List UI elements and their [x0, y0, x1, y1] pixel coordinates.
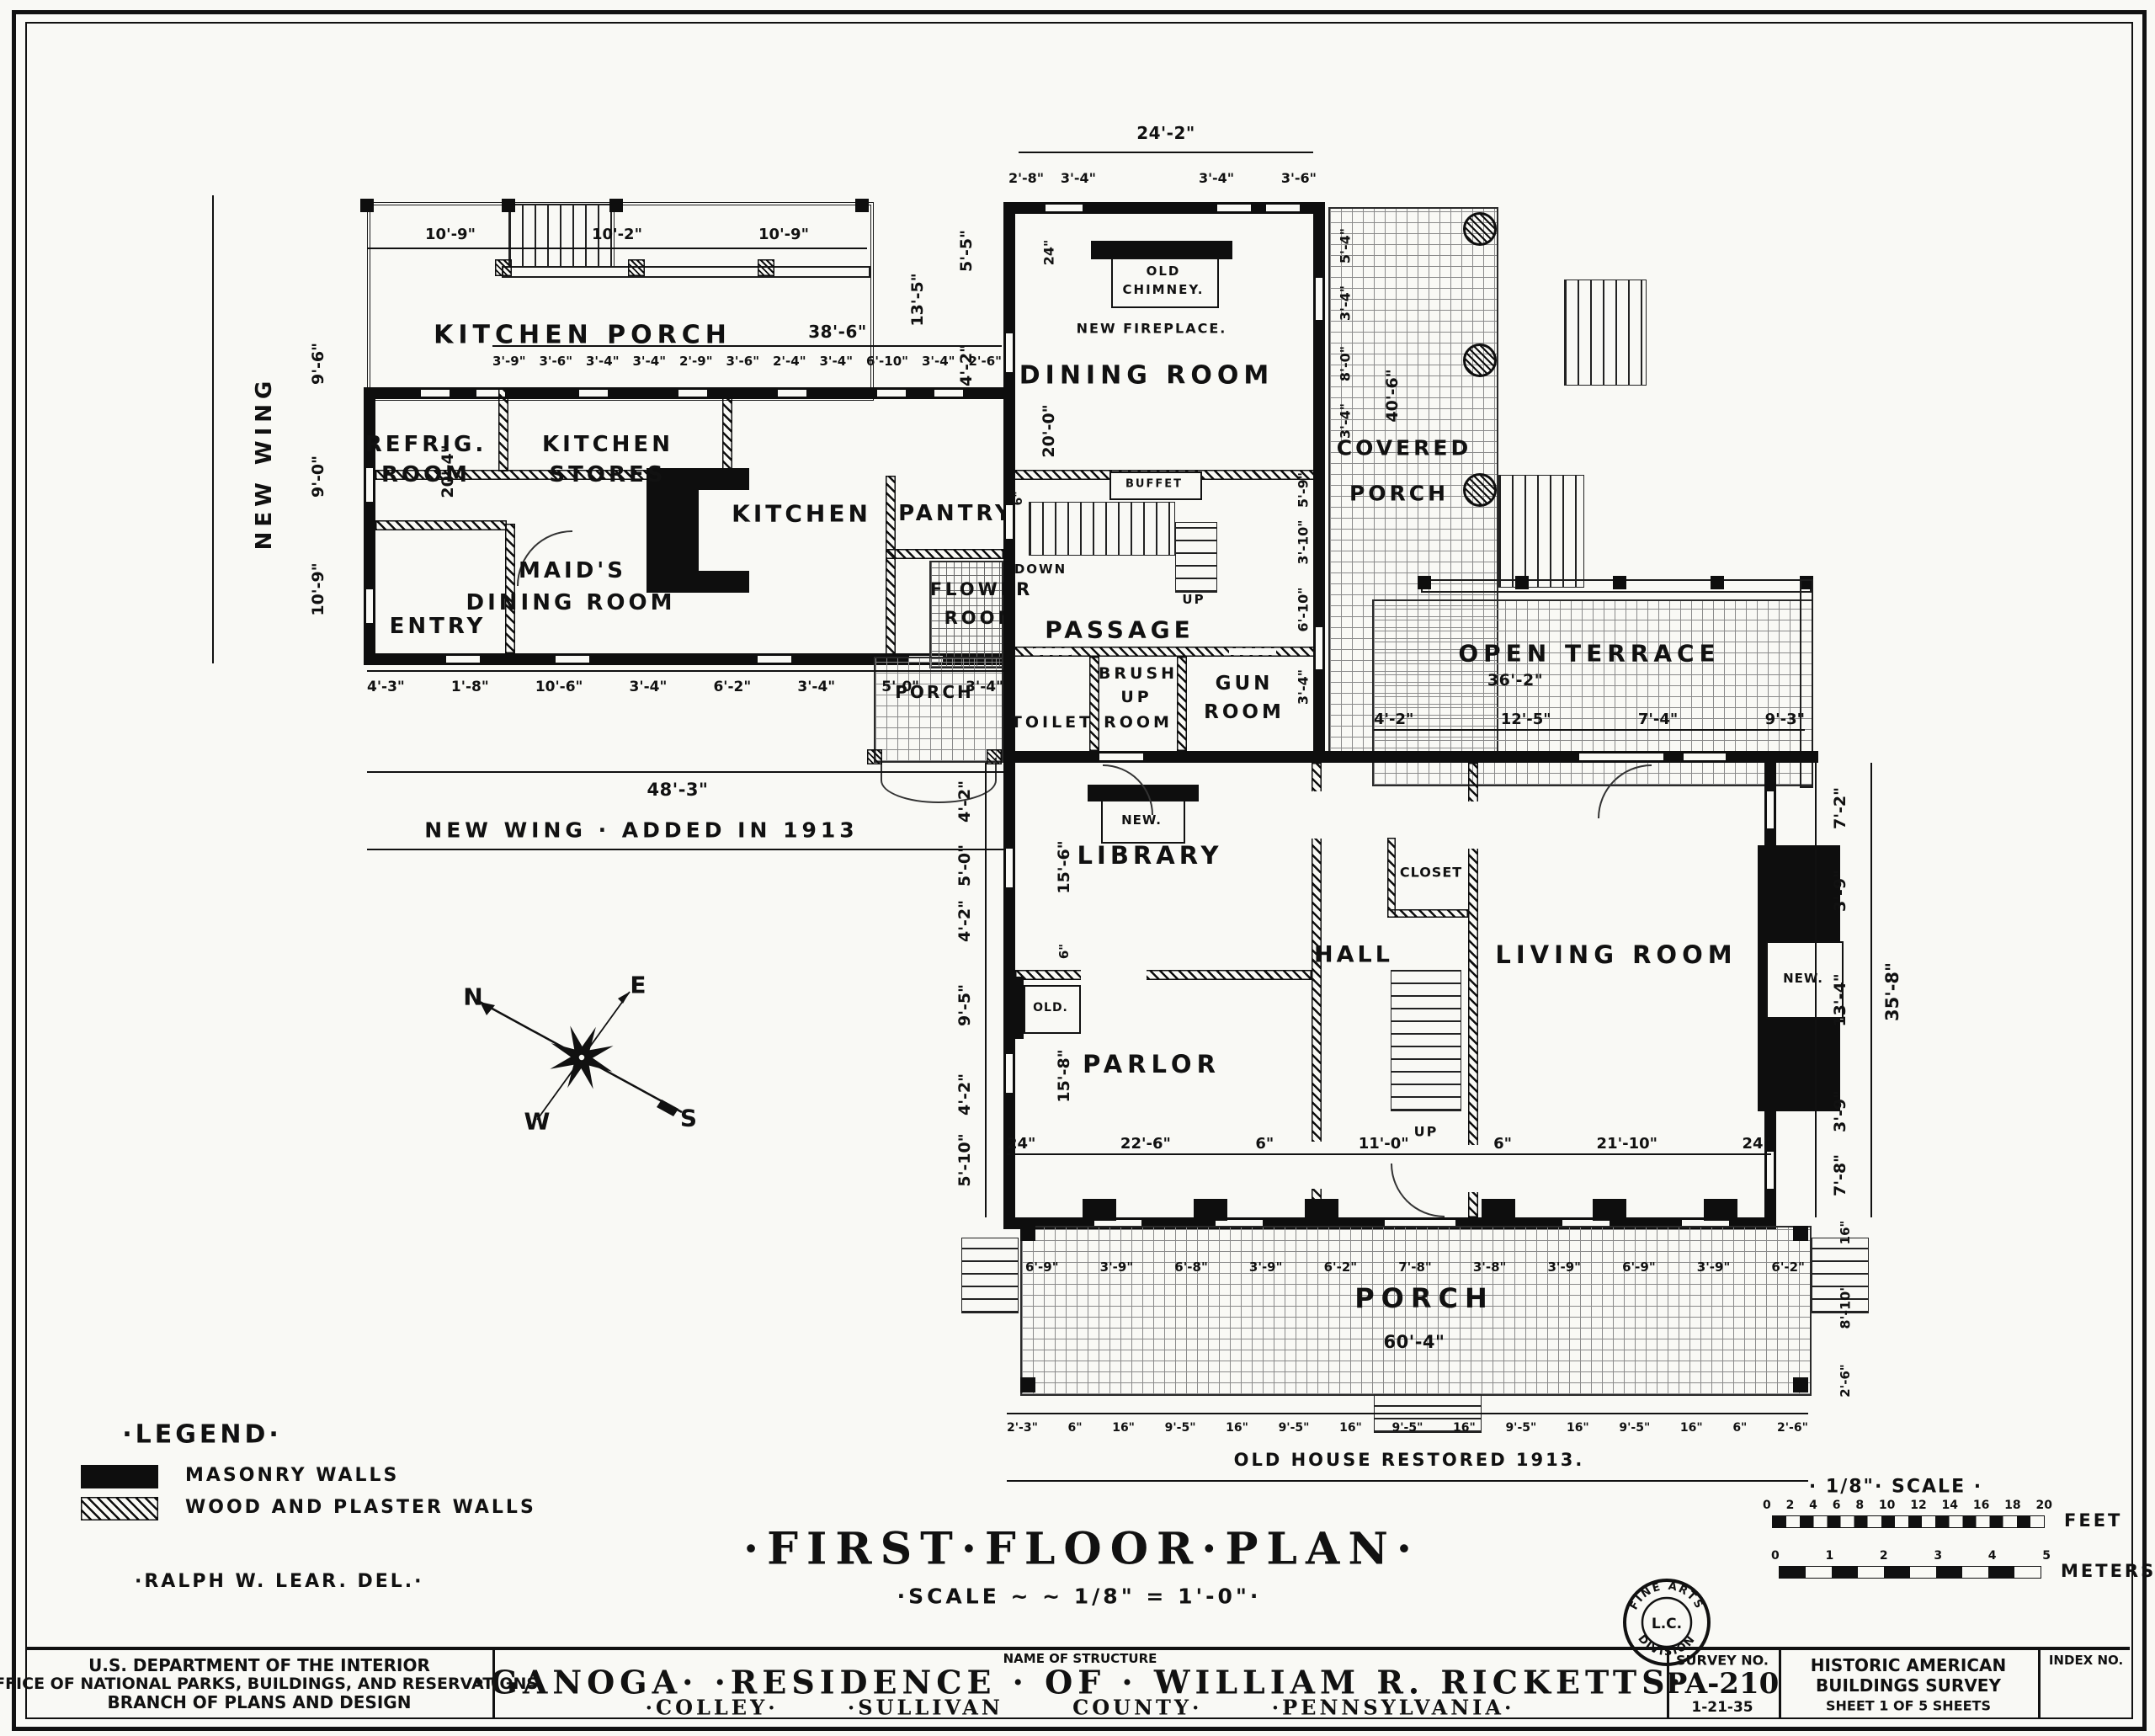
- dimension-label: 11'-0": [1359, 1135, 1409, 1153]
- dimension-line: [985, 763, 987, 1217]
- porch-column: [758, 259, 774, 276]
- fireplace-masonry: [1007, 977, 1024, 1039]
- tick-label: 12: [1910, 1499, 1926, 1512]
- dimension: 5'-10": [955, 1133, 974, 1186]
- label-old: OLD.: [1033, 1001, 1068, 1014]
- dimension-line: [367, 771, 1003, 773]
- dimension-label: 3'-9": [1547, 1259, 1581, 1275]
- door-gap: [1081, 970, 1147, 980]
- dimension: 5'-5": [957, 230, 976, 272]
- dimension-label: 3'-9": [1249, 1259, 1283, 1275]
- hall-stairs: [1391, 970, 1461, 1111]
- dimension-line: [1007, 1480, 1808, 1482]
- dimension: 15'-6": [1055, 840, 1073, 893]
- room-label-kitchen-stores: STORES: [549, 462, 666, 487]
- dimension-label: 6": [1732, 1421, 1747, 1435]
- wall-frame: [722, 387, 732, 471]
- scalebar-feet-label: FEET: [2064, 1510, 2122, 1531]
- dimension: 8'-0": [1338, 346, 1354, 381]
- window-gap: [934, 390, 963, 397]
- room-label-brush-up: BRUSH: [1099, 664, 1178, 683]
- dimension: 48'-3": [647, 780, 709, 800]
- porch-post: [1793, 1226, 1808, 1241]
- dimension: 4'-2": [955, 1073, 974, 1116]
- dimension-label: 7'-4": [1638, 711, 1678, 728]
- dimension-label: 2'-8": [1008, 170, 1044, 186]
- railing-post: [1515, 576, 1529, 589]
- tick-label: 16: [1973, 1499, 1989, 1512]
- dimension-line: [1019, 152, 1313, 153]
- agency-line: BRANCH OF PLANS AND DESIGN: [108, 1692, 412, 1712]
- dimension: 9'-0": [309, 455, 327, 498]
- room-label-closet: CLOSET: [1400, 865, 1462, 881]
- door-gap: [1468, 801, 1478, 849]
- room-label-dining-room: DINING ROOM: [1019, 361, 1274, 391]
- room-label-gun-room: GUN: [1216, 673, 1274, 695]
- dimension: 16": [1838, 1221, 1853, 1245]
- dimension-label: 7'-8": [1398, 1259, 1432, 1275]
- dimension: 4'-2": [957, 344, 976, 386]
- label-up: UP: [1182, 592, 1205, 607]
- dimension: 3'-4": [1296, 669, 1312, 705]
- title-block-divider: [1779, 1650, 1781, 1717]
- dimension-label: 4'-3": [367, 679, 405, 695]
- dimension-label: 12'-5": [1501, 711, 1551, 728]
- scalebar-meters-label: METERS: [2061, 1561, 2155, 1581]
- dimension-label: 2'-9": [679, 354, 713, 369]
- room-label-hall: HALL: [1314, 942, 1393, 968]
- dimension-label: 16": [1112, 1421, 1135, 1435]
- dimension-label: 6'-8": [1174, 1259, 1208, 1275]
- window-gap: [1266, 205, 1300, 211]
- railing-post: [1613, 576, 1626, 589]
- dimension-label: 16": [1567, 1421, 1589, 1435]
- tick-label: 2: [1786, 1499, 1795, 1512]
- dimension-line: [1007, 1413, 1808, 1414]
- tick-label: 5: [2042, 1549, 2051, 1563]
- sheet-info: SHEET 1 OF 5 SHEETS: [1826, 1698, 1991, 1714]
- dimension-line: [367, 849, 1003, 850]
- survey-date: 1-21-35: [1691, 1699, 1753, 1716]
- tick-label: 2: [1880, 1549, 1888, 1563]
- agency-line: U.S. DEPARTMENT OF THE INTERIOR: [88, 1655, 430, 1675]
- dimension-label: 3'-4": [966, 679, 1003, 695]
- tick-label: 14: [1942, 1499, 1958, 1512]
- dimension-label: 6'-9": [1622, 1259, 1656, 1275]
- dimension-label: 9'-5": [1279, 1421, 1310, 1435]
- dimension: 6'-10": [1296, 587, 1312, 631]
- kitchen-porch-inner-rail: [502, 266, 870, 278]
- dimension-label: 1'-8": [451, 679, 489, 695]
- dimension-line: [1870, 763, 1872, 1217]
- dimension: 9'-6": [309, 343, 327, 385]
- dimension-label: 3'-6": [1281, 170, 1317, 186]
- room-label-entry: ENTRY: [390, 614, 487, 639]
- dimension-label: 9'-3": [1765, 711, 1805, 728]
- dimension-label: 6'-2": [1771, 1259, 1805, 1275]
- dimension-label: 3'-4": [820, 354, 854, 369]
- dimension-line: [1007, 1153, 1771, 1155]
- dimension-label: 3'-6": [540, 354, 573, 369]
- porch-post: [1020, 1226, 1035, 1241]
- wall-masonry: [364, 387, 375, 665]
- room-label-brush-up: ROOM: [1104, 713, 1173, 732]
- dimension: 6": [1012, 491, 1025, 505]
- dimension-label: 16": [1680, 1421, 1703, 1435]
- dimension-label: 16": [1339, 1421, 1362, 1435]
- wall-frame: [498, 387, 508, 471]
- window-gap: [758, 656, 791, 663]
- room-label-flower-room: FLOWER: [930, 579, 1034, 599]
- dimension-label: 9'-5": [1505, 1421, 1536, 1435]
- terrace-stairs: [1498, 475, 1584, 588]
- door-gap: [1312, 791, 1322, 839]
- tick-label: 6: [1833, 1499, 1841, 1512]
- window-gap: [366, 468, 373, 502]
- dimension-label: 6'-2": [1324, 1259, 1358, 1275]
- dimension-line: [492, 345, 1002, 347]
- dimension-label: 24": [1743, 1135, 1771, 1153]
- dimension-row: 6'-9"3'-9"6'-8"3'-9"6'-2"7'-8"3'-8"3'-9"…: [1025, 1259, 1805, 1275]
- window-gap: [678, 390, 707, 397]
- label-new-fireplace: NEW FIREPLACE.: [1077, 321, 1227, 337]
- dimension-label: 6": [1493, 1135, 1512, 1153]
- dimension-label: 3'-6": [726, 354, 760, 369]
- dimension: 20'-0": [1040, 404, 1058, 457]
- dimension-row: 10'-9"10'-2"10'-9": [367, 226, 867, 243]
- room-label-toilet: TOILET: [1011, 713, 1093, 732]
- room-label-pantry: PANTRY: [898, 501, 1014, 526]
- dimension: 38'-6": [808, 322, 867, 342]
- dimension: 36'-2": [1487, 671, 1543, 690]
- dimension-row: 24"22'-6"6"11'-0"6"21'-10"24": [1007, 1135, 1771, 1153]
- room-label-brush-up: UP: [1120, 688, 1152, 706]
- dimension-line: [367, 670, 1003, 672]
- exterior-stairs: [1564, 280, 1647, 386]
- dimension-label: 2'-3": [1007, 1421, 1038, 1435]
- wall-frame: [1387, 909, 1468, 918]
- window-gap: [1006, 333, 1013, 372]
- legend-title: ·LEGEND·: [122, 1420, 282, 1450]
- dimension: 20'-4": [439, 445, 457, 498]
- tick-label: 4: [1988, 1549, 1997, 1563]
- legend-label-wood: WOOD AND PLASTER WALLS: [185, 1497, 536, 1518]
- label-old-chimney: OLD: [1147, 264, 1181, 279]
- wall-frame: [1177, 657, 1187, 751]
- label-down: DOWN: [1014, 562, 1067, 577]
- dimension-row: 4'-3"1'-8"10'-6"3'-4"6'-2"3'-4"5'-0"3'-4…: [367, 679, 1003, 695]
- wall-frame: [886, 476, 896, 665]
- porch-column-round: [1463, 212, 1497, 246]
- railing-post: [1711, 576, 1724, 589]
- tick-label: 4: [1809, 1499, 1817, 1512]
- annotation-new-wing: NEW WING: [252, 376, 277, 551]
- dimension-label: 3'-4": [797, 679, 835, 695]
- room-label-open-terrace: OPEN TERRACE: [1458, 640, 1720, 668]
- dimension-label: 3'-4": [586, 354, 620, 369]
- window-gap: [1684, 754, 1726, 760]
- porch-post: [855, 199, 869, 212]
- window-gap: [446, 656, 480, 663]
- dimension-label: 6'-10": [866, 354, 908, 369]
- window-gap: [1316, 278, 1322, 320]
- annotation-old-house: OLD HOUSE RESTORED 1913.: [1234, 1450, 1585, 1470]
- pilaster: [1704, 1199, 1737, 1221]
- dimension-row: 3'-9"3'-6"3'-4"3'-4"2'-9"3'-6"2'-4"3'-4"…: [492, 354, 1002, 369]
- dimension-label: 3'-4": [1061, 170, 1096, 186]
- pilaster: [1083, 1199, 1116, 1221]
- dimension-label: 16": [1453, 1421, 1476, 1435]
- tick-label: 1: [1825, 1549, 1833, 1563]
- dimension-label: 3'-4": [1199, 170, 1234, 186]
- porch-column-round: [1463, 343, 1497, 377]
- tick-label: 10: [1879, 1499, 1895, 1512]
- legend-swatch-masonry: [81, 1465, 158, 1488]
- wall-frame: [375, 520, 507, 530]
- porch-column: [495, 259, 512, 276]
- dimension-line: [1815, 763, 1817, 1217]
- tick-label: 8: [1855, 1499, 1864, 1512]
- room-label-main-porch: PORCH: [1354, 1282, 1494, 1314]
- room-label-living-room: LIVING ROOM: [1495, 940, 1737, 969]
- porch-steps-side: [961, 1238, 1019, 1313]
- window-gap: [1006, 849, 1013, 887]
- wall-frame: [1015, 970, 1312, 980]
- small-porch-step-arc: [881, 758, 997, 803]
- index-no-label: INDEX NO.: [2049, 1653, 2123, 1668]
- dimension-row: 2'-8"3'-4": [1008, 170, 1096, 186]
- door-gap: [1316, 627, 1322, 669]
- dimension-label: 3'-4": [630, 679, 668, 695]
- dimension-row: 2'-3"6"16"9'-5"16"9'-5"16"9'-5"16"9'-5"1…: [1007, 1421, 1808, 1435]
- porch-post: [609, 199, 623, 212]
- room-label-kitchen: KITCHEN: [732, 500, 871, 528]
- delineator-credit: ·RALPH W. LEAR. DEL.·: [135, 1571, 424, 1592]
- dimension: 3'-4": [1338, 285, 1354, 321]
- wall-frame: [1387, 838, 1396, 918]
- survey-no-label: SURVEY NO.: [1676, 1653, 1769, 1669]
- dimension-label: 10'-6": [535, 679, 583, 695]
- compass-w: W: [524, 1108, 554, 1136]
- dimension-label: 21'-10": [1597, 1135, 1657, 1153]
- habs-line: HISTORIC AMERICAN: [1811, 1655, 2007, 1675]
- compass-s: S: [680, 1105, 700, 1132]
- dimension: 4'-2": [955, 780, 974, 823]
- dimension-row: 3'-4"3'-6": [1199, 170, 1317, 186]
- scalebar-feet: [1772, 1515, 2045, 1528]
- window-gap: [778, 390, 806, 397]
- door-gap: [1034, 648, 1071, 655]
- railing-post: [1418, 576, 1431, 589]
- tick-label: 0: [1763, 1499, 1771, 1512]
- door-gap: [1099, 754, 1143, 760]
- tick-label: 3: [1934, 1549, 1942, 1563]
- wall-frame: [886, 549, 1003, 559]
- room-label-passage: PASSAGE: [1045, 616, 1194, 644]
- window-gap: [579, 390, 608, 397]
- room-label-covered-porch: PORCH: [1349, 482, 1449, 506]
- pilaster: [1482, 1199, 1515, 1221]
- svg-text:FINE ARTS: FINE ARTS: [1628, 1580, 1706, 1612]
- dimension-label: 9'-5": [1165, 1421, 1196, 1435]
- compass-e: E: [630, 972, 649, 999]
- porch-post: [502, 199, 515, 212]
- room-label-covered-porch: COVERED: [1337, 436, 1471, 461]
- room-label-maids-dining: DINING ROOM: [466, 590, 676, 615]
- window-gap: [1767, 1152, 1774, 1189]
- survey-no-value: PA-210: [1666, 1667, 1780, 1701]
- tick-label: 18: [2004, 1499, 2020, 1512]
- dimension-label: 10'-9": [425, 226, 476, 243]
- dimension: 7'-8": [1831, 1154, 1849, 1196]
- porch-post: [1020, 1377, 1035, 1393]
- pilaster: [1593, 1199, 1626, 1221]
- dimension: 5'-4": [1338, 228, 1354, 264]
- door-gap: [1579, 754, 1663, 760]
- window-gap: [877, 390, 906, 397]
- habs-line: BUILDINGS SURVEY: [1816, 1675, 2001, 1696]
- dimension: 40'-6": [1383, 369, 1402, 422]
- dimension: 9'-5": [955, 984, 974, 1026]
- window-gap: [1006, 1054, 1013, 1093]
- window-gap: [1217, 205, 1251, 211]
- dimension: 24'-2": [1136, 123, 1195, 143]
- dimension: 3'-4": [1338, 403, 1354, 439]
- porch-post: [360, 199, 374, 212]
- dimension-label: 3'-9": [1100, 1259, 1134, 1275]
- window-gap: [1006, 505, 1013, 539]
- small-porch-decking: [874, 657, 1003, 763]
- room-label-refrig: REFRIG.: [365, 432, 487, 457]
- annotation-new-wing-added: NEW WING · ADDED IN 1913: [424, 818, 858, 843]
- window-gap: [366, 589, 373, 623]
- dimension-label: 16": [1226, 1421, 1248, 1435]
- scalebar-meters: [1779, 1566, 2041, 1579]
- title-block-divider: [2038, 1650, 2041, 1717]
- dimension-label: 6": [1068, 1421, 1083, 1435]
- dimension: 3'-10": [1296, 519, 1312, 564]
- dimension-label: 10'-9": [758, 226, 809, 243]
- dimension-label: 6": [1255, 1135, 1274, 1153]
- dimension-label: 6'-2": [713, 679, 751, 695]
- drawing-title: ·FIRST·FLOOR·PLAN·: [743, 1524, 1420, 1575]
- dimension: 5'-9": [1296, 472, 1312, 508]
- label-old-chimney: CHIMNEY.: [1123, 282, 1205, 297]
- dimension: 24": [1041, 240, 1057, 266]
- dimension-label: 4'-2": [1374, 711, 1413, 728]
- scalebar-feet-ticks: 02468101214161820: [1763, 1499, 2052, 1512]
- porch-post: [1793, 1377, 1808, 1393]
- stamp-text-center: L.C.: [1652, 1616, 1682, 1632]
- legend-label-masonry: MASONRY WALLS: [185, 1465, 399, 1486]
- porch-column: [987, 749, 1002, 764]
- dimension: 3'-9": [1831, 870, 1849, 912]
- dimension-label: 3'-4": [922, 354, 955, 369]
- compass-graphic: [461, 967, 714, 1143]
- window-gap: [1046, 205, 1083, 211]
- tick-label: 0: [1771, 1549, 1780, 1563]
- fireplace-masonry: [1091, 241, 1232, 259]
- room-label-gun-room: ROOM: [1204, 701, 1285, 723]
- dimension-label: 3'-4": [633, 354, 667, 369]
- dimension: 60'-4": [1384, 1332, 1445, 1352]
- scalebar-meter-ticks: 012345: [1771, 1549, 2051, 1563]
- drawing-sheet: KITCHEN PORCH REFRIG. ROOM KITCHEN STORE…: [0, 0, 2155, 1736]
- compass-rose: N E W S: [461, 967, 714, 1143]
- dimension-label: 10'-2": [592, 226, 642, 243]
- dimension: 6": [1056, 944, 1072, 959]
- dimension: 4'-2": [955, 900, 974, 942]
- dimension: 8'-10": [1838, 1284, 1854, 1329]
- window-gap: [556, 656, 589, 663]
- dimension-label: 6'-9": [1025, 1259, 1059, 1275]
- porch-column-round: [1463, 473, 1497, 507]
- dimension-label: 22'-6": [1120, 1135, 1171, 1153]
- tick-label: 20: [2035, 1499, 2051, 1512]
- dimension-line: [212, 195, 214, 663]
- stamp-text-top: FINE ARTS: [1628, 1580, 1706, 1612]
- dimension-label: 5'-0": [881, 679, 919, 695]
- drawing-scale-note: ·SCALE ~ ~ 1/8" = 1'-0"·: [897, 1584, 1262, 1609]
- wall-frame: [505, 524, 515, 653]
- passage-stairs-landing: [1175, 522, 1217, 593]
- room-label-library: LIBRARY: [1077, 841, 1223, 870]
- dimension: 7'-2": [1831, 787, 1849, 829]
- dimension: 3'-9": [1831, 1090, 1849, 1132]
- dimension-label: 2'-6": [1777, 1421, 1808, 1435]
- dimension-label: 3'-8": [1473, 1259, 1507, 1275]
- dimension: 13'-4": [1831, 973, 1849, 1026]
- room-label-kitchen-stores: KITCHEN: [542, 432, 673, 457]
- label-buffet: BUFFET: [1125, 478, 1183, 491]
- dimension-label: 3'-9": [1697, 1259, 1731, 1275]
- window-gap: [421, 390, 450, 397]
- dimension-label: 9'-5": [1619, 1421, 1650, 1435]
- dimension: 13'-5": [908, 273, 927, 326]
- dimension: 2'-6": [1838, 1364, 1853, 1398]
- passage-stairs: [1029, 502, 1175, 556]
- room-label-parlor: PARLOR: [1083, 1050, 1221, 1078]
- dimension: 15'-8": [1055, 1049, 1073, 1102]
- porch-column: [628, 259, 645, 276]
- pilaster: [1194, 1199, 1227, 1221]
- door-gap: [1229, 648, 1276, 655]
- dimension-label: 24": [1007, 1135, 1035, 1153]
- porch-column: [867, 749, 882, 764]
- legend-swatch-wood: [81, 1497, 158, 1520]
- dimension-line: [1374, 729, 1805, 731]
- room-label-maids-dining: MAID'S: [519, 558, 626, 583]
- compass-n: N: [463, 983, 486, 1011]
- dimension-label: 2'-4": [773, 354, 806, 369]
- room-label-refrig: ROOM: [381, 462, 471, 487]
- dimension-label: 3'-9": [492, 354, 526, 369]
- scalebar-title: · 1/8"· SCALE ·: [1809, 1477, 1982, 1498]
- pilaster: [1305, 1199, 1338, 1221]
- dimension: 35'-8": [1882, 962, 1902, 1021]
- dimension-row: 4'-2"12'-5"7'-4"9'-3": [1374, 711, 1805, 728]
- dimension: 5'-0": [955, 844, 974, 887]
- dimension-label: 9'-5": [1392, 1421, 1423, 1435]
- dimension: 10'-9": [309, 562, 327, 615]
- window-gap: [1767, 791, 1774, 828]
- label-new: NEW.: [1783, 971, 1823, 986]
- dimension-line: [367, 248, 867, 249]
- agency-line: OFFICE OF NATIONAL PARKS, BUILDINGS, AND…: [0, 1675, 538, 1693]
- structure-location: ·COLLEY· ·SULLIVAN COUNTY· ·PENNSYLVANIA…: [646, 1696, 1515, 1720]
